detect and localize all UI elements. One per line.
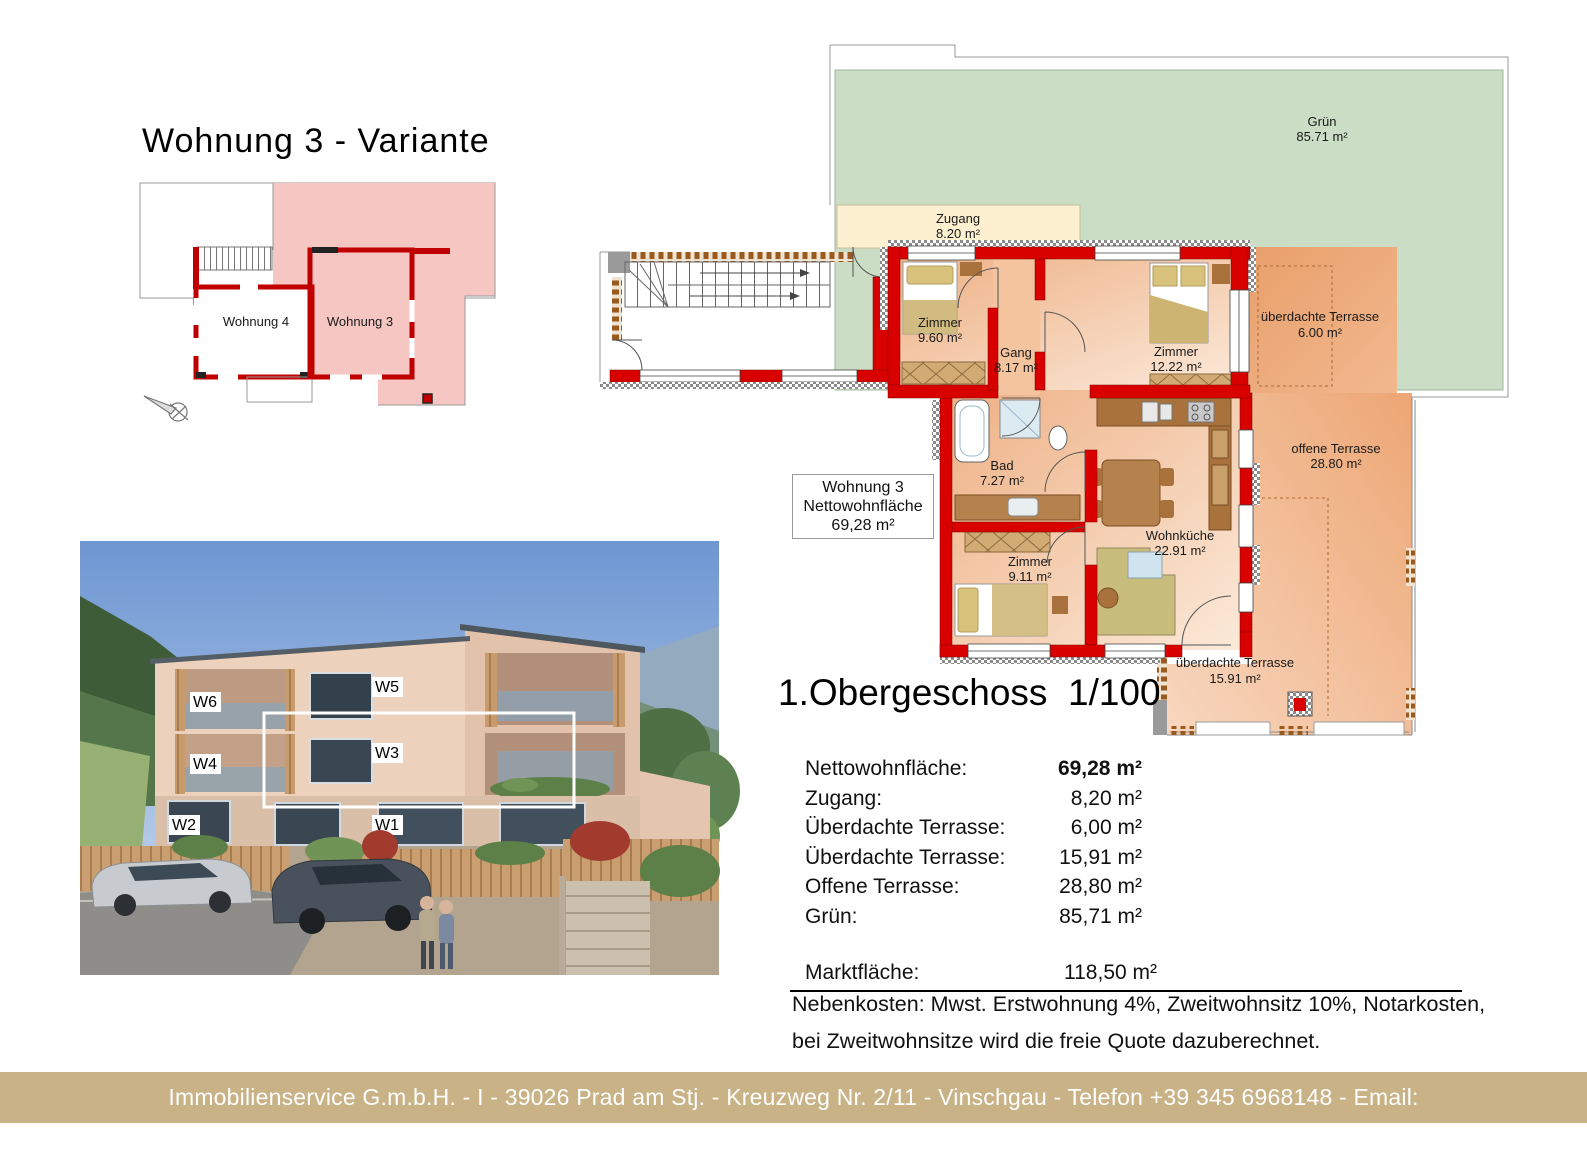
row-value: 85,71 m² bbox=[1059, 902, 1142, 932]
table-row: Nettowohnfläche: 69,28 m² bbox=[805, 754, 1142, 784]
overview-stairs bbox=[197, 247, 272, 270]
costs-note-line2: bei Zweitwohnsitze wird die freie Quote … bbox=[792, 1029, 1320, 1054]
zimmer1222-name-label: Zimmer bbox=[1154, 344, 1199, 359]
dining-table bbox=[1102, 460, 1160, 526]
north-arrow-icon bbox=[144, 396, 188, 421]
unit-label-w3: W3 bbox=[375, 745, 399, 762]
floor-heading-scale: 1/100 bbox=[1068, 672, 1161, 713]
row-label: Überdachte Terrasse: bbox=[805, 843, 1005, 873]
offene-terrasse-area-label: 28.80 m² bbox=[1310, 456, 1362, 471]
floor-heading-title: 1.Obergeschoss bbox=[778, 672, 1047, 713]
area-terrasse-6: überdachte Terrasse 6.00 m² bbox=[1248, 247, 1397, 393]
terrasse6-name-label: überdachte Terrasse bbox=[1261, 309, 1379, 324]
row-label: Zugang: bbox=[805, 784, 882, 814]
row-value: 6,00 m² bbox=[1071, 813, 1142, 843]
table-row: Offene Terrasse: 28,80 m² bbox=[805, 872, 1142, 902]
zimmer911-area-label: 9.11 m² bbox=[1008, 569, 1052, 584]
wohnkueche-area-label: 22.91 m² bbox=[1154, 543, 1206, 558]
overview-apartment4-terrace bbox=[247, 377, 312, 402]
toilet bbox=[1049, 426, 1067, 450]
red-shrub bbox=[362, 830, 398, 862]
main-floorplan: Grün 85.71 m² Zugang 8.20 m² überdachte … bbox=[595, 40, 1515, 745]
table-row: Grün: 85,71 m² bbox=[805, 902, 1142, 932]
zimmer960-name-label: Zimmer bbox=[918, 315, 963, 330]
floorplan-page: { "page": { "title": "Wohnung 3 - Varian… bbox=[0, 0, 1587, 1123]
row-value: 28,80 m² bbox=[1059, 872, 1142, 902]
bed-pillow bbox=[907, 266, 953, 284]
unit-label-w2: W2 bbox=[172, 817, 196, 834]
overview-apartment3-label: Wohnung 3 bbox=[327, 314, 393, 329]
row-value: 69,28 m² bbox=[1058, 754, 1142, 784]
footer-band: Immobilienservice G.m.b.H. - I - 39026 P… bbox=[0, 1072, 1587, 1123]
unit-label-w4: W4 bbox=[193, 756, 217, 773]
zimmer960-area-label: 9.60 m² bbox=[918, 330, 963, 345]
row-label: Überdachte Terrasse: bbox=[805, 813, 1005, 843]
overview-floorplan: Wohnung 4 Wohnung 3 bbox=[135, 175, 510, 440]
gang-name-label: Gang bbox=[1000, 345, 1032, 360]
table-row: Überdachte Terrasse: 6,00 m² bbox=[805, 813, 1142, 843]
info-box-area: 69,28 m² bbox=[793, 516, 933, 535]
marktflaeche-label: Marktfläche: bbox=[805, 958, 919, 988]
info-box-apartment: Wohnung 3 bbox=[793, 478, 933, 497]
row-value: 15,91 m² bbox=[1059, 843, 1142, 873]
row-value: 8,20 m² bbox=[1071, 784, 1142, 814]
corridor-wall bbox=[600, 370, 888, 389]
unit-label-w6: W6 bbox=[193, 694, 217, 711]
floor-heading: 1.Obergeschoss 1/100 bbox=[778, 672, 1161, 714]
row-label: Nettowohnfläche: bbox=[805, 754, 967, 784]
zugang-name-label: Zugang bbox=[936, 211, 980, 226]
zugang-area-label: 8.20 m² bbox=[936, 226, 981, 241]
building-rendering: W6 W5 W4 W3 W2 W1 bbox=[80, 541, 719, 975]
marktflaeche-row: Marktfläche: 118,50 m² bbox=[790, 958, 1462, 992]
zimmer1222-area-label: 12.22 m² bbox=[1150, 359, 1202, 374]
wohnkueche-name-label: Wohnküche bbox=[1146, 528, 1214, 543]
area-table: Nettowohnfläche: 69,28 m² Zugang: 8,20 m… bbox=[805, 754, 1142, 931]
costs-note-line1: Nebenkosten: Mwst. Erstwohnung 4%, Zweit… bbox=[792, 992, 1485, 1017]
marktflaeche-value: 118,50 m² bbox=[1064, 958, 1157, 988]
building bbox=[150, 624, 710, 846]
offene-terrasse-name-label: offene Terrasse bbox=[1291, 441, 1380, 456]
stairs-outdoor bbox=[562, 876, 650, 975]
unit-label-w5: W5 bbox=[375, 679, 399, 696]
gang-area-label: 8.17 m² bbox=[994, 360, 1039, 375]
bad-name-label: Bad bbox=[990, 458, 1013, 473]
bad-area-label: 7.27 m² bbox=[980, 473, 1025, 488]
table-row: Überdachte Terrasse: 15,91 m² bbox=[805, 843, 1142, 873]
wardrobe bbox=[902, 362, 985, 384]
terrasse6-area-label: 6.00 m² bbox=[1298, 325, 1343, 340]
terrasse1591-area-label: 15.91 m² bbox=[1209, 671, 1261, 686]
overview-apartment4-label: Wohnung 4 bbox=[223, 314, 289, 329]
footer-contact-text: Immobilienservice G.m.b.H. - I - 39026 P… bbox=[0, 1072, 1587, 1174]
apartment-info-box: Wohnung 3 Nettowohnfläche 69,28 m² bbox=[792, 474, 934, 539]
terrasse1591-name-label: überdachte Terrasse bbox=[1176, 655, 1294, 670]
zimmer911-name-label: Zimmer bbox=[1008, 554, 1053, 569]
row-label: Grün: bbox=[805, 902, 858, 932]
info-box-type: Nettowohnfläche bbox=[793, 497, 933, 516]
row-label: Offene Terrasse: bbox=[805, 872, 959, 902]
gruen-area-label: 85.71 m² bbox=[1296, 129, 1348, 144]
table-row: Zugang: 8,20 m² bbox=[805, 784, 1142, 814]
page-title: Wohnung 3 - Variante bbox=[142, 122, 490, 161]
gruen-name-label: Grün bbox=[1308, 114, 1337, 129]
